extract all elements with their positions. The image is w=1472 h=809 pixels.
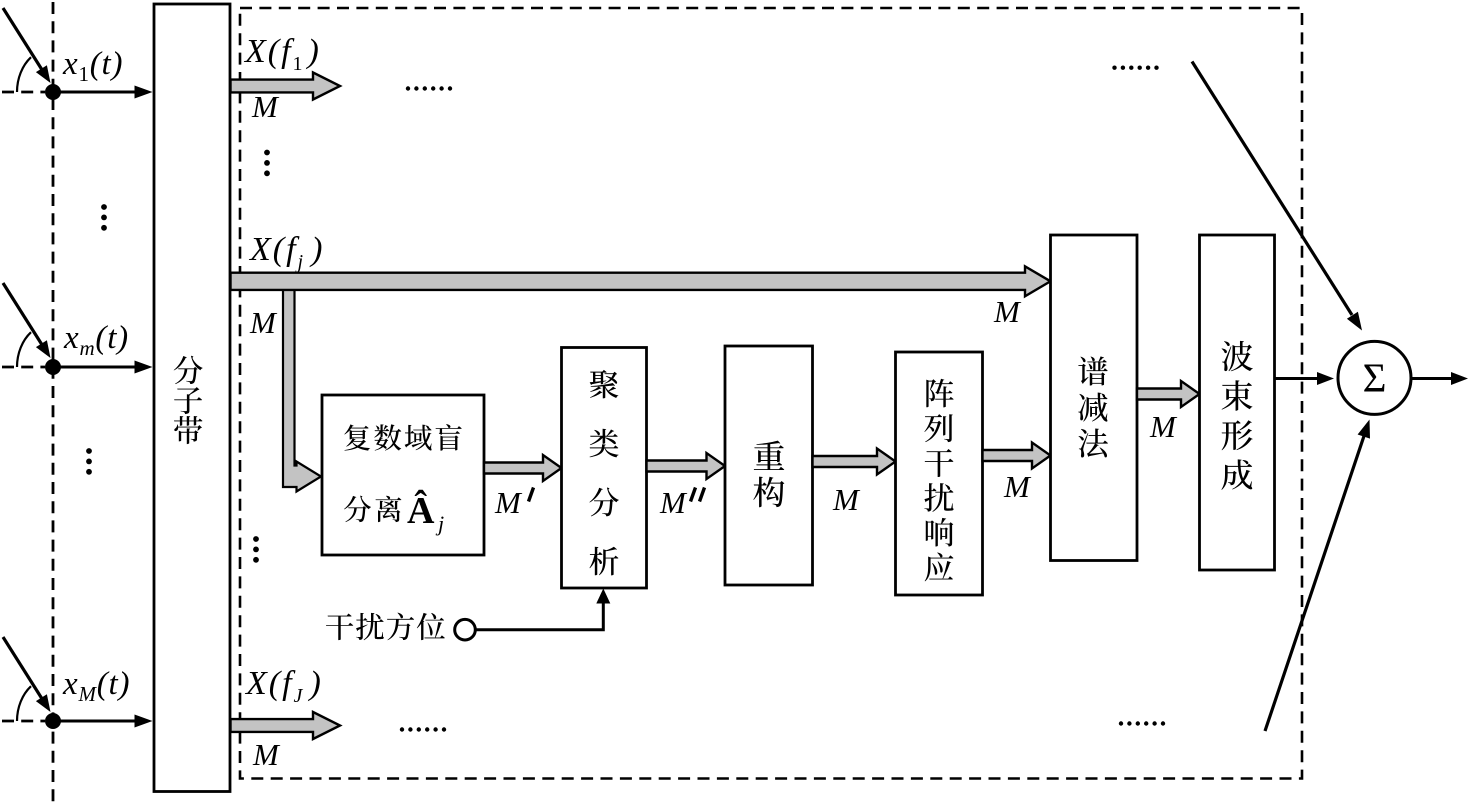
svg-text:x1(t): x1(t) xyxy=(62,46,123,86)
svg-text:X(f1): X(f1) xyxy=(243,33,321,75)
svg-text:M: M xyxy=(494,485,523,520)
svg-text:X(fJ): X(fJ) xyxy=(244,665,323,707)
svg-text:M: M xyxy=(659,485,688,520)
svg-text:Σ: Σ xyxy=(1363,355,1387,401)
svg-text:M: M xyxy=(1003,469,1032,504)
svg-text:Â: Â xyxy=(407,490,435,532)
svg-text:M: M xyxy=(252,737,281,772)
svg-text:M: M xyxy=(1149,409,1178,444)
svg-text:M: M xyxy=(993,294,1022,329)
svg-text:M: M xyxy=(832,482,861,517)
svg-text:X(fj): X(fj) xyxy=(248,231,324,273)
svg-text:xm(t): xm(t) xyxy=(63,320,129,360)
svg-text:M: M xyxy=(251,89,280,124)
svg-text:M: M xyxy=(249,305,278,340)
svg-text:xM(t): xM(t) xyxy=(62,666,130,706)
